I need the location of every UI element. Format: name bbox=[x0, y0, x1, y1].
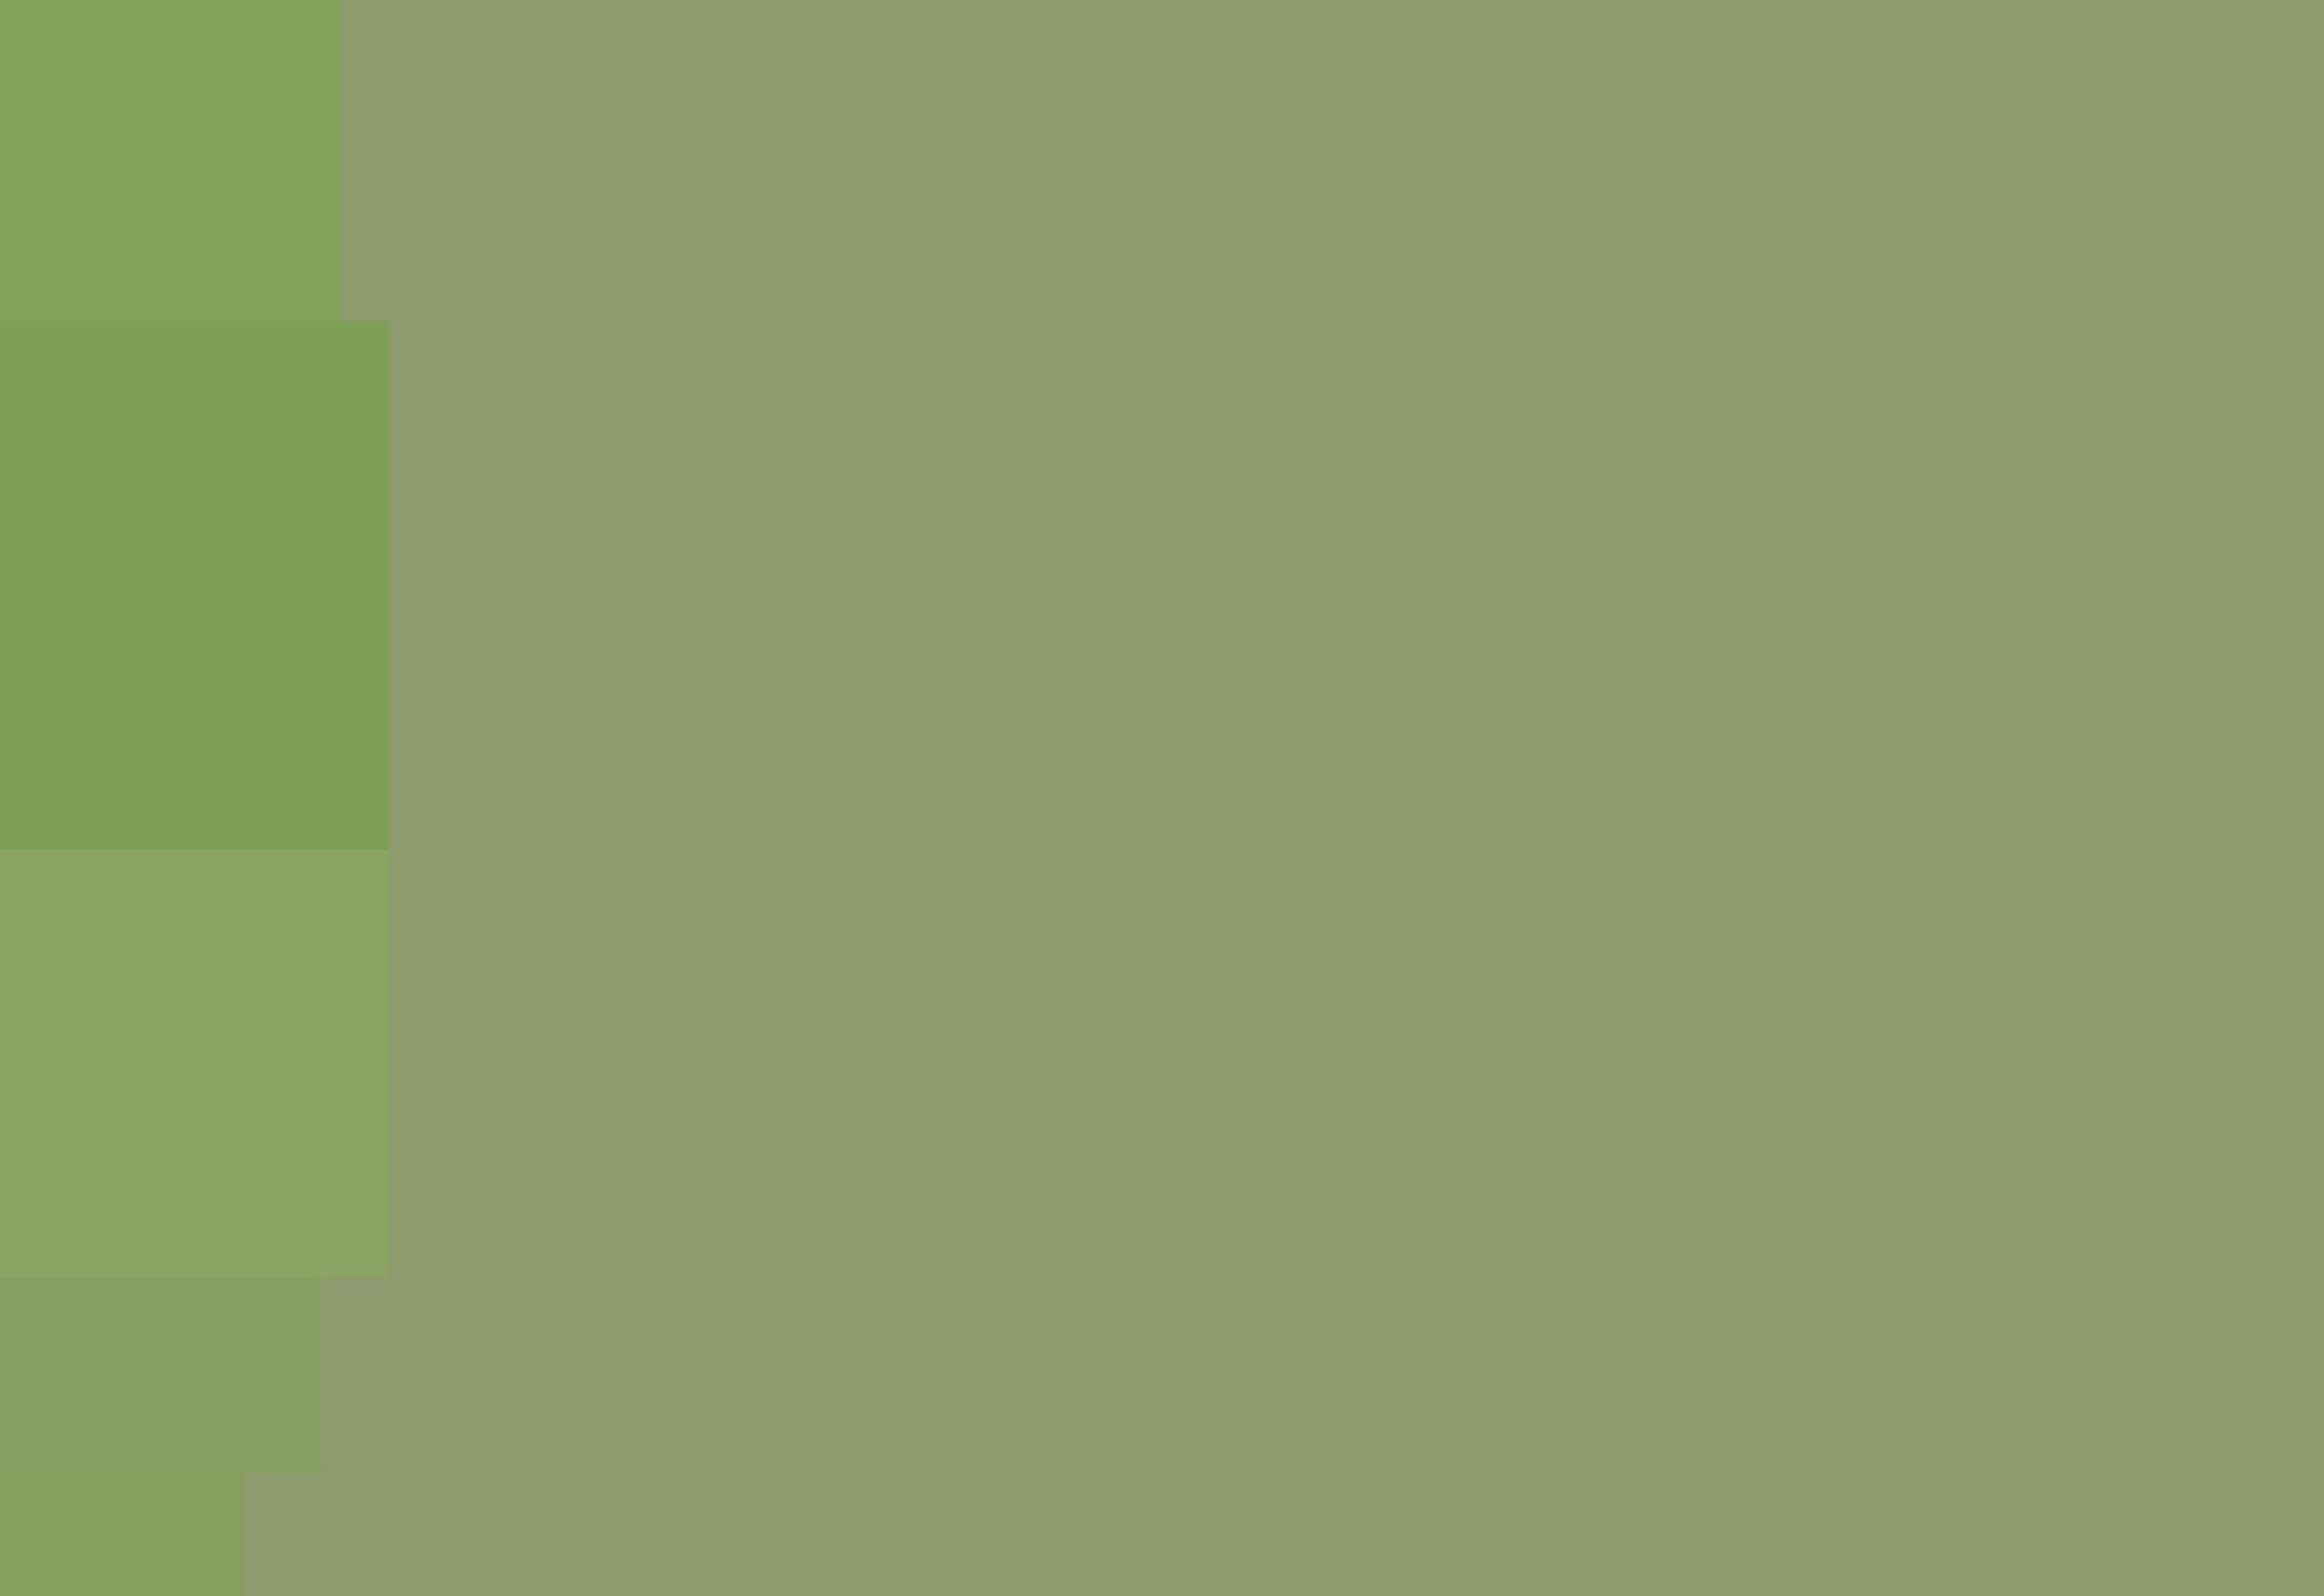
lawn-clearing bbox=[0, 0, 340, 321]
lawn-clearing bbox=[0, 1277, 320, 1472]
site-plan-map: 23222425A106B99A107B100B101B102B1032126A… bbox=[0, 0, 2324, 1596]
lawn-clearing bbox=[0, 850, 388, 1277]
master-plan-canvas: 23222425A106B99A107B100B101B102B1032126A… bbox=[0, 0, 2324, 1596]
lawn-clearing bbox=[0, 1472, 243, 1596]
lawn-clearing bbox=[0, 321, 388, 850]
